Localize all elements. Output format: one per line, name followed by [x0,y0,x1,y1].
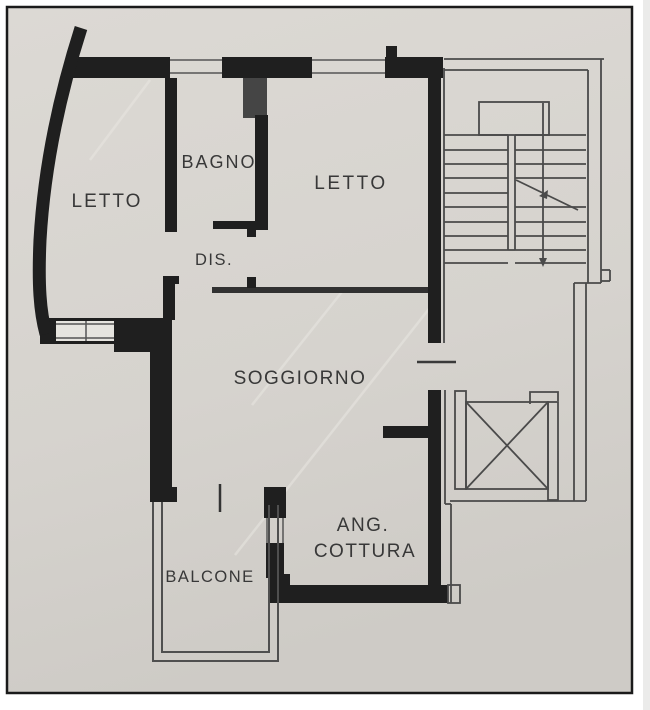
wall-top-left [72,57,170,78]
photo-edge-strip [643,0,650,710]
wall-cottura-stub [383,426,432,438]
wall-letto-bagno [165,78,177,232]
wall-dis-soggiorno [212,287,430,293]
wall-letto-door-cap [163,276,179,284]
wall-top-middle [222,57,312,78]
wall-bagno-stub [243,78,267,118]
wall-right-upper [428,73,441,343]
room-label-soggiorno: SOGGIORNO [234,368,367,389]
room-label-letto-left: LETTO [72,191,143,212]
room-label-bagno: BAGNO [181,152,256,172]
room-label-balcone: BALCONE [165,568,254,586]
wall-bagno-bottom [213,221,265,229]
room-label-ang-cottura-line2: COTTURA [314,541,416,562]
wall-dis-jamb [247,277,256,288]
wall-stub-up [386,46,397,58]
wall-bottom [268,585,448,603]
wall-bagno-right [255,115,268,230]
room-label-letto-right: LETTO [314,173,387,194]
room-label-dis: DIS. [195,251,233,269]
wall-bagno-foot [247,228,256,237]
wall-cottura-left-upper [264,487,286,518]
room-label-ang-cottura-line1: ANG. [337,515,389,536]
wall-soggiorno-left [150,344,172,502]
floorplan-drawing: LETTO BAGNO LETTO DIS. SOGGIORNO ANG. CO… [0,0,650,710]
wall-foot-balcony-door [150,487,177,502]
floorplan-photo: LETTO BAGNO LETTO DIS. SOGGIORNO ANG. CO… [0,0,650,710]
wall-right-lower [428,390,441,603]
